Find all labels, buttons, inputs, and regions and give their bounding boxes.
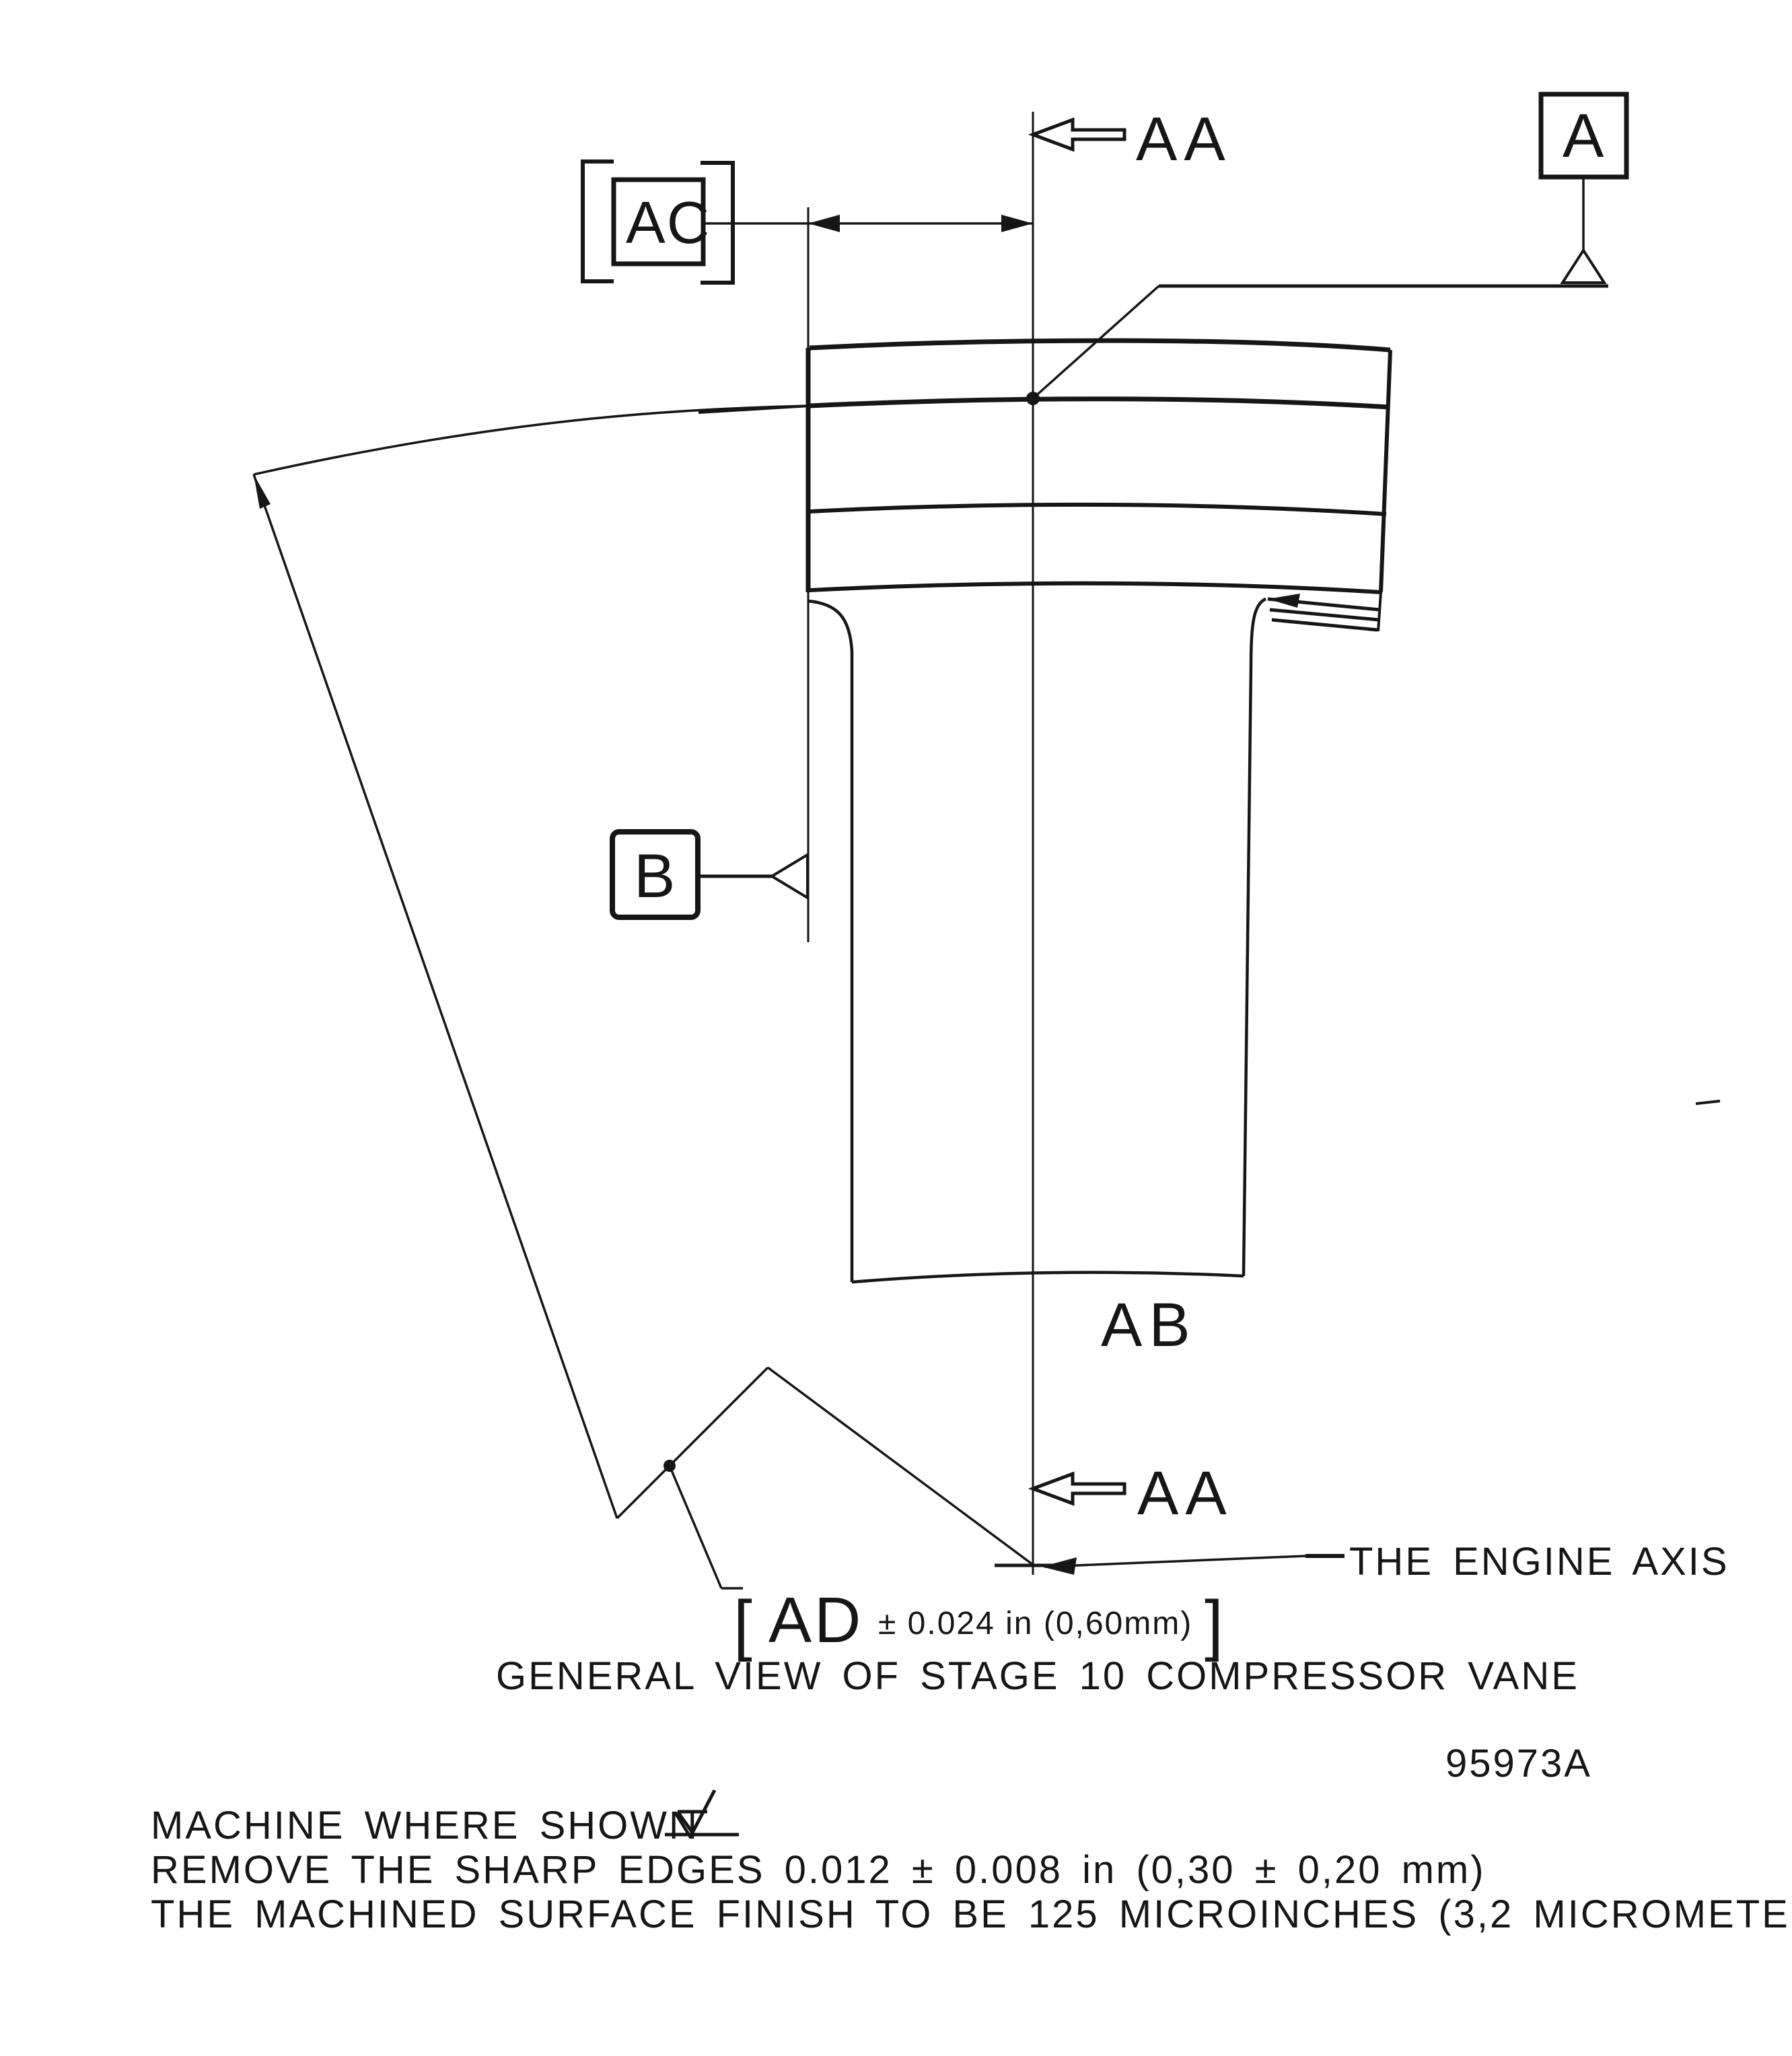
ac-label: AC bbox=[626, 189, 711, 256]
ad-label: AD bbox=[768, 1584, 863, 1656]
engine-axis-arrow-icon bbox=[1042, 1557, 1077, 1575]
section-arrow-top-icon bbox=[1033, 120, 1124, 149]
radius-arrow-icon bbox=[254, 474, 271, 509]
platform-arc-2 bbox=[810, 399, 1390, 407]
engine-axis-leader bbox=[1044, 1556, 1305, 1567]
radius-ad: [ AD ± 0.024 in (0,60mm) ] bbox=[254, 406, 1223, 1662]
under-platform-line-2 bbox=[1270, 610, 1379, 620]
airfoil-left-edge bbox=[808, 601, 852, 1282]
airfoil-right-edge bbox=[1244, 599, 1266, 1276]
engine-axis-label: THE ENGINE AXIS bbox=[1349, 1540, 1729, 1584]
tip-surface-extension-arc bbox=[254, 406, 810, 474]
section-arrow-bottom-icon bbox=[1033, 1474, 1124, 1503]
ac-left-bracket bbox=[583, 162, 614, 281]
radius-line bbox=[254, 474, 617, 1518]
section-aa-bottom: AA bbox=[1033, 1459, 1233, 1528]
ad-close-bracket: ] bbox=[1205, 1587, 1223, 1662]
note-line-2: REMOVE THE SHARP EDGES 0.012 ± 0.008 in … bbox=[151, 1848, 1486, 1892]
datum-b-label: B bbox=[634, 842, 682, 911]
ad-tolerance: ± 0.024 in (0,60mm) bbox=[878, 1606, 1192, 1641]
section-aa-bottom-label: AA bbox=[1137, 1459, 1233, 1528]
section-plane-ab-label: AB bbox=[1101, 1291, 1197, 1359]
section-aa-top-label: AA bbox=[1136, 105, 1232, 174]
drawing-number: 95973A bbox=[1445, 1742, 1592, 1785]
drawing-caption: GENERAL VIEW OF STAGE 10 COMPRESSOR VANE bbox=[496, 1654, 1579, 1698]
vane-outline bbox=[698, 341, 1390, 1282]
note-line-1: MACHINE WHERE SHOWN bbox=[151, 1804, 699, 1847]
platform-top-arc bbox=[810, 341, 1390, 350]
airfoil-bottom-edge bbox=[852, 1273, 1244, 1282]
platform-arc-3 bbox=[810, 505, 1386, 514]
dim-arrow-right-icon bbox=[1001, 215, 1033, 232]
stray-dash bbox=[1696, 1101, 1720, 1104]
platform-right-edge bbox=[1381, 350, 1390, 592]
datum-a-triangle-icon bbox=[1563, 250, 1604, 283]
platform-right-edge-lower bbox=[1378, 592, 1381, 631]
surface-target-dot bbox=[1026, 392, 1040, 405]
section-aa-top: AA bbox=[1033, 105, 1232, 174]
datum-a-label: A bbox=[1563, 102, 1610, 170]
datum-b: B bbox=[612, 832, 808, 917]
notes-block: MACHINE WHERE SHOWN REMOVE THE SHARP EDG… bbox=[151, 1790, 1792, 1936]
datum-b-triangle-icon bbox=[772, 855, 808, 898]
ad-open-bracket: [ bbox=[733, 1587, 752, 1662]
note-line-3: THE MACHINED SURFACE FINISH TO BE 125 MI… bbox=[151, 1892, 1792, 1936]
engine-axis: THE ENGINE AXIS bbox=[995, 1540, 1729, 1584]
dim-arrow-left-icon bbox=[808, 215, 840, 232]
under-platform-line-3 bbox=[1272, 620, 1377, 630]
radius-zigzag-left bbox=[617, 1368, 768, 1518]
radius-zigzag-right bbox=[768, 1368, 1033, 1565]
platform-bottom-arc bbox=[810, 583, 1381, 592]
ad-leader-line bbox=[670, 1466, 721, 1588]
engineering-drawing: AC A [ AD ± 0.024 in (0,60mm) ] B bbox=[0, 0, 1792, 2056]
